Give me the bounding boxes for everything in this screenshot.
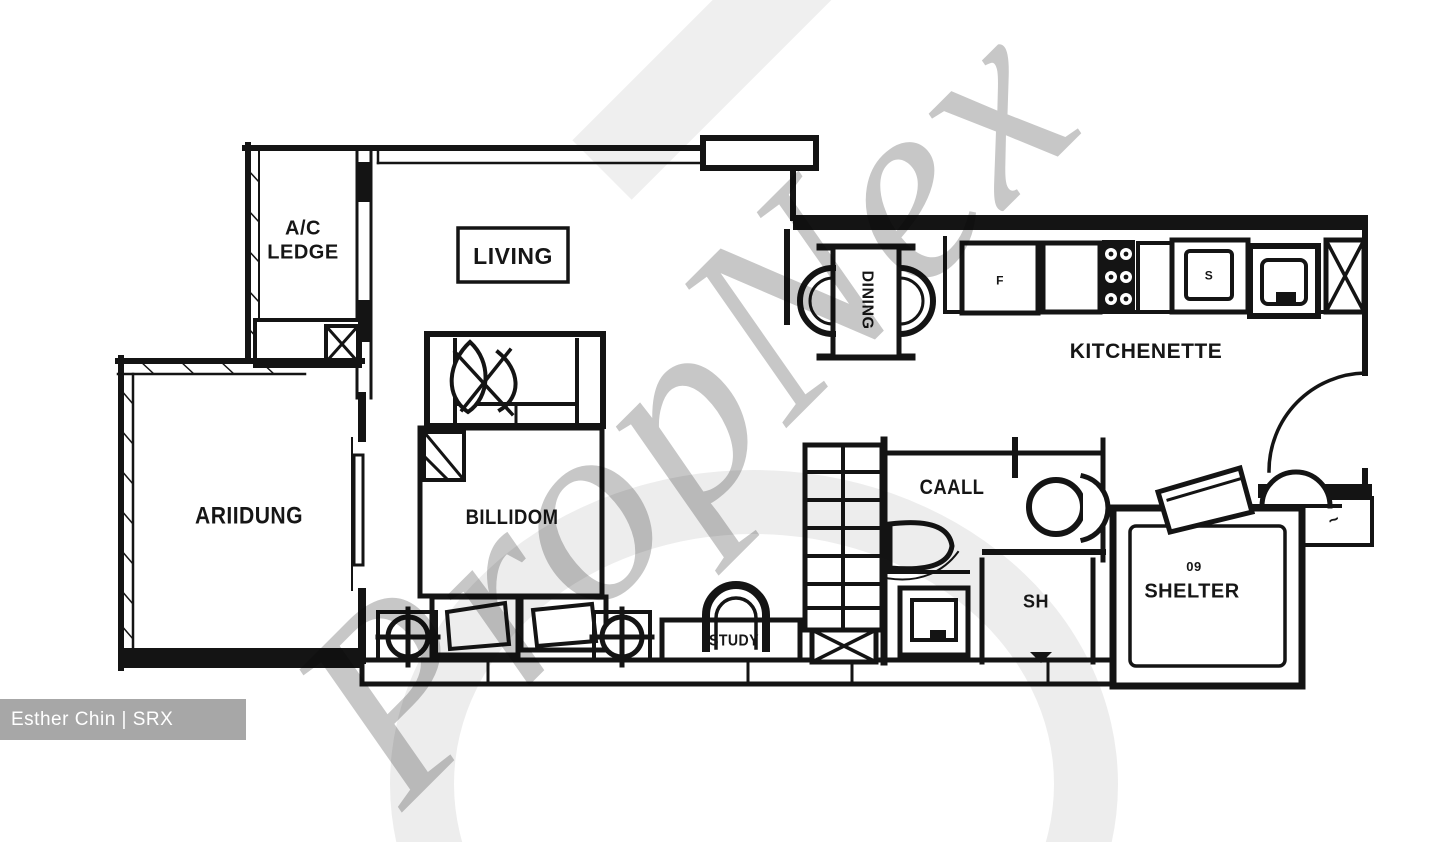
- label-shelter-prefix: 09: [1186, 560, 1201, 574]
- pillow-icon: [533, 604, 596, 646]
- label-ac-ledge-1: A/C: [285, 219, 321, 240]
- washing-machine-icon: [900, 588, 968, 655]
- shelter-walls: [1113, 468, 1340, 686]
- toilet-icon: [1029, 480, 1083, 534]
- label-bath: CAALL: [920, 477, 985, 499]
- hob-icon: [1102, 240, 1135, 313]
- sofa-icon: [427, 334, 603, 426]
- label-fridge: F: [996, 275, 1004, 288]
- label-sink: S: [1205, 270, 1214, 283]
- arch-fixture-icon: [1262, 472, 1330, 506]
- counter-unit: [1043, 243, 1100, 312]
- label-bedroom: BILLIDOM: [466, 507, 559, 529]
- washer-icon: [1250, 246, 1318, 316]
- bathroom-walls: [884, 440, 1108, 579]
- label-shelter: SHELTER: [1144, 582, 1239, 603]
- attribution-badge: Esther Chin | SRX PROPERTY: [0, 699, 246, 740]
- floorplan-page: A/C LEDGE LIVING DINING KITCHENETTE F S …: [0, 0, 1440, 842]
- bedside-cabinets: [432, 597, 606, 655]
- label-shower: SH: [1023, 593, 1049, 612]
- ac-duct-icon: [1326, 240, 1364, 312]
- label-study: STUDY: [709, 634, 759, 651]
- pillow-icon: [447, 603, 509, 649]
- shower-room-walls: [884, 560, 1093, 663]
- label-dining: DINING: [858, 271, 875, 330]
- label-balcony: ARIIDUNG: [195, 503, 303, 528]
- label-kitchenette: KITCHENETTE: [1070, 341, 1223, 363]
- downlight-icon: [378, 609, 438, 665]
- bathroom-door-icon: [890, 523, 952, 569]
- shelf-icon: [805, 445, 882, 662]
- label-living: LIVING: [473, 244, 553, 268]
- label-ac-ledge-2: LEDGE: [267, 243, 338, 264]
